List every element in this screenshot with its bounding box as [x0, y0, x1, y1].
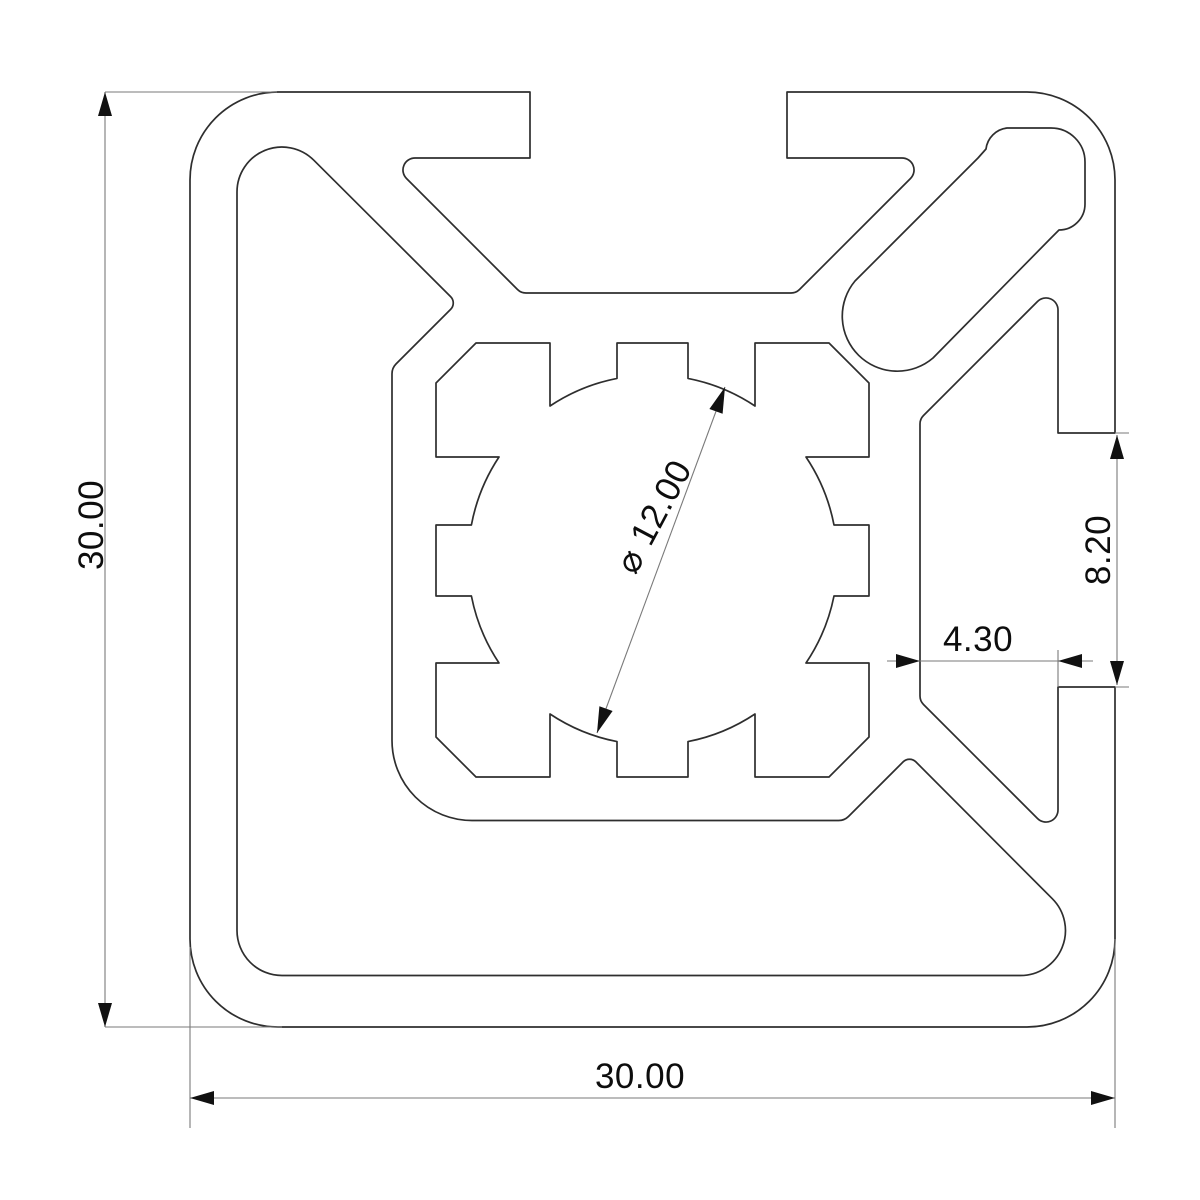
dim-slot-depth: 4.30 — [887, 620, 1093, 687]
dim-width-arrow-left — [190, 1091, 214, 1105]
dim-bore-diameter: ⌀ 12.00 — [597, 387, 725, 733]
dim-bore-arrow-lower — [597, 706, 613, 733]
dim-overall-width: 30.00 — [190, 939, 1115, 1128]
dim-bore-arrow-upper — [709, 387, 725, 414]
dim-slot-depth-label: 4.30 — [943, 620, 1013, 659]
dim-overall-height: 30.00 — [72, 92, 282, 1027]
dim-height-arrow-up — [98, 92, 112, 116]
dim-height-line — [105, 92, 282, 1027]
corner-channel-cavity — [842, 128, 1085, 371]
dim-height-arrow-down — [98, 1003, 112, 1027]
dim-height-label: 30.00 — [72, 480, 111, 570]
dim-slot-opening: 8.20 — [1079, 433, 1129, 687]
profile-drawing: 30.00 30.00 ⌀ 12.00 8.20 4.3 — [0, 0, 1200, 1200]
dim-width-line — [190, 939, 1115, 1128]
drawing-canvas: 30.00 30.00 ⌀ 12.00 8.20 4.3 — [0, 0, 1200, 1200]
dim-width-arrow-right — [1091, 1091, 1115, 1105]
dim-bore-label: ⌀ 12.00 — [608, 454, 700, 580]
dim-slot-opening-arrow-down — [1110, 661, 1124, 685]
dim-slot-depth-arrow-left — [896, 654, 920, 668]
dim-slot-depth-arrow-right — [1058, 654, 1082, 668]
dim-slot-opening-label: 8.20 — [1079, 515, 1118, 585]
dim-slot-opening-arrow-up — [1110, 435, 1124, 459]
dim-width-label: 30.00 — [595, 1057, 685, 1096]
